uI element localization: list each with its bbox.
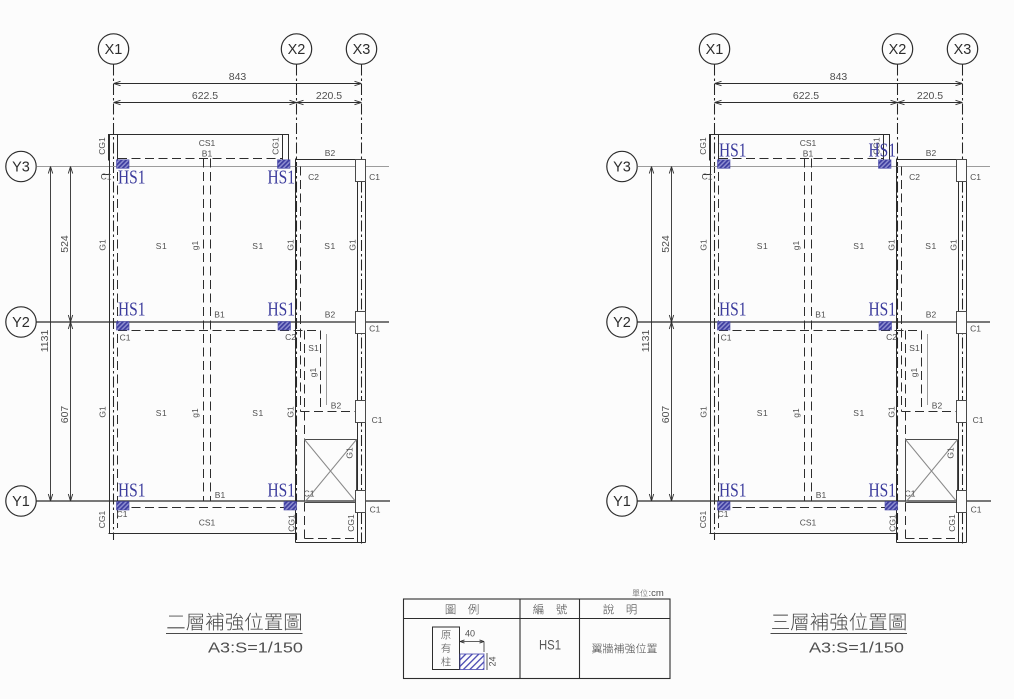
svg-text:C1: C1 (369, 172, 380, 182)
svg-text:Y3: Y3 (12, 160, 30, 176)
svg-text:X2: X2 (288, 42, 306, 58)
svg-text:C1: C1 (370, 505, 381, 515)
svg-text:HS1: HS1 (118, 480, 146, 502)
svg-text:G1: G1 (286, 406, 296, 418)
svg-text:C2: C2 (285, 332, 296, 342)
svg-text:B1: B1 (803, 149, 814, 159)
svg-text:1131: 1131 (640, 330, 652, 353)
svg-text:S1: S1 (156, 241, 167, 251)
svg-text:C2: C2 (308, 172, 319, 182)
svg-text:Y1: Y1 (12, 494, 30, 510)
svg-text:CG1: CG1 (698, 137, 708, 155)
svg-text:g1: g1 (909, 368, 919, 378)
svg-text:C1: C1 (120, 333, 131, 343)
svg-text:G1: G1 (887, 239, 897, 251)
svg-text:C1: C1 (718, 509, 729, 519)
svg-text:G1: G1 (887, 406, 897, 418)
svg-text:S1: S1 (853, 241, 864, 251)
svg-text:B2: B2 (926, 310, 937, 320)
svg-text:843: 843 (830, 71, 848, 83)
svg-text:C1: C1 (973, 415, 984, 425)
svg-text:607: 607 (59, 406, 71, 424)
svg-text:C1: C1 (372, 415, 383, 425)
svg-text:G1: G1 (946, 447, 956, 459)
svg-text::cm: :cm (649, 588, 664, 599)
svg-text:HS1: HS1 (719, 480, 747, 502)
svg-text:S1: S1 (853, 408, 864, 418)
svg-text:CG1: CG1 (287, 514, 297, 532)
svg-text:HS1: HS1 (268, 480, 296, 502)
svg-text:CS1: CS1 (199, 518, 216, 528)
svg-text:g1: g1 (791, 408, 801, 418)
svg-text:C1: C1 (970, 324, 981, 334)
svg-text:X1: X1 (706, 42, 724, 58)
svg-text:C2: C2 (909, 172, 920, 182)
svg-text:CS1: CS1 (800, 518, 817, 528)
svg-text:g1: g1 (190, 408, 200, 418)
svg-text:g1: g1 (190, 241, 200, 251)
svg-text:G1: G1 (98, 239, 108, 251)
svg-text:HS1: HS1 (268, 167, 296, 189)
svg-text:G1: G1 (348, 239, 358, 251)
svg-text:HS1: HS1 (869, 480, 897, 502)
svg-text:B2: B2 (331, 401, 342, 411)
svg-text:CG1: CG1 (888, 514, 898, 532)
svg-text:HS1: HS1 (118, 299, 146, 321)
svg-text:622.5: 622.5 (793, 90, 819, 102)
svg-text:G1: G1 (699, 239, 709, 251)
svg-text:CG1: CG1 (346, 514, 356, 532)
svg-text:220.5: 220.5 (316, 90, 342, 102)
svg-text:C1: C1 (702, 172, 713, 182)
svg-text:G1: G1 (949, 239, 959, 251)
svg-text:B2: B2 (325, 148, 336, 158)
svg-text:40: 40 (465, 629, 475, 639)
svg-text:CG1: CG1 (271, 137, 281, 155)
svg-text:S1: S1 (909, 343, 920, 353)
svg-text:HS1: HS1 (539, 638, 561, 653)
svg-text:24: 24 (488, 656, 498, 666)
svg-text:G1: G1 (345, 447, 355, 459)
svg-text:S1: S1 (925, 241, 936, 251)
svg-text:B1: B1 (815, 310, 826, 320)
svg-text:g1: g1 (308, 368, 318, 378)
svg-text:Y3: Y3 (613, 160, 631, 176)
svg-text:C1: C1 (101, 172, 112, 182)
svg-text:B1: B1 (202, 149, 213, 159)
svg-text:C1: C1 (369, 324, 380, 334)
svg-text:X2: X2 (889, 42, 907, 58)
svg-text:622.5: 622.5 (192, 90, 218, 102)
svg-text:HS1: HS1 (719, 299, 747, 321)
svg-text:S1: S1 (252, 241, 263, 251)
svg-text:X3: X3 (353, 42, 371, 58)
svg-text:S1: S1 (252, 408, 263, 418)
svg-text:B1: B1 (816, 490, 827, 500)
svg-text:C1: C1 (304, 489, 315, 499)
svg-text:CS1: CS1 (199, 138, 216, 148)
svg-text:C2: C2 (886, 332, 897, 342)
svg-text:A3:S=1/150: A3:S=1/150 (809, 640, 904, 657)
svg-text:B2: B2 (926, 148, 937, 158)
svg-text:X1: X1 (105, 42, 123, 58)
svg-text:C1: C1 (117, 509, 128, 519)
svg-text:S1: S1 (757, 408, 768, 418)
svg-text:B2: B2 (932, 401, 943, 411)
svg-text:524: 524 (660, 235, 672, 253)
svg-text:C1: C1 (970, 172, 981, 182)
svg-text:CG1: CG1 (97, 137, 107, 155)
svg-text:CG1: CG1 (97, 510, 107, 528)
svg-text:G1: G1 (699, 406, 709, 418)
svg-text:G1: G1 (98, 406, 108, 418)
svg-text:S1: S1 (308, 343, 319, 353)
svg-text:C1: C1 (905, 489, 916, 499)
svg-text:CG1: CG1 (698, 510, 708, 528)
svg-text:HS1: HS1 (268, 299, 296, 321)
svg-text:524: 524 (59, 235, 71, 253)
svg-text:HS1: HS1 (118, 167, 146, 189)
svg-text:HS1: HS1 (719, 140, 747, 162)
svg-text:1131: 1131 (39, 330, 51, 353)
svg-text:Y2: Y2 (613, 315, 631, 331)
svg-text:B2: B2 (325, 310, 336, 320)
svg-text:607: 607 (660, 406, 672, 424)
svg-text:HS1: HS1 (869, 140, 897, 162)
svg-text:C1: C1 (971, 505, 982, 515)
svg-text:CS1: CS1 (800, 138, 817, 148)
svg-text:220.5: 220.5 (917, 90, 943, 102)
svg-text:S1: S1 (757, 241, 768, 251)
svg-text:X3: X3 (954, 42, 972, 58)
svg-text:HS1: HS1 (869, 299, 897, 321)
svg-text:S1: S1 (156, 408, 167, 418)
svg-text:A3:S=1/150: A3:S=1/150 (208, 640, 303, 657)
svg-text:Y2: Y2 (12, 315, 30, 331)
svg-text:G1: G1 (286, 239, 296, 251)
svg-text:S1: S1 (324, 241, 335, 251)
svg-text:g1: g1 (791, 241, 801, 251)
svg-text:B1: B1 (214, 310, 225, 320)
svg-text:Y1: Y1 (613, 494, 631, 510)
svg-text:C1: C1 (721, 333, 732, 343)
svg-text:B1: B1 (215, 490, 226, 500)
svg-text:CG1: CG1 (947, 514, 957, 532)
svg-text:843: 843 (229, 71, 247, 83)
